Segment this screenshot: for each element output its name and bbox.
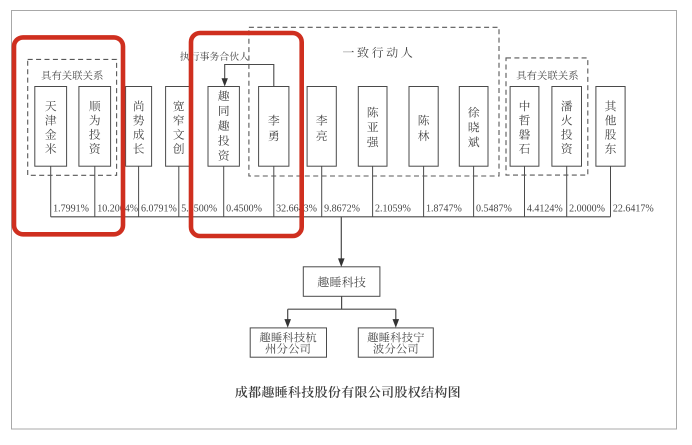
svg-text:22.6417%: 22.6417% bbox=[613, 203, 654, 214]
svg-text:1.7991%: 1.7991% bbox=[53, 203, 89, 214]
svg-text:10.2064%: 10.2064% bbox=[97, 203, 138, 214]
svg-text:1.8747%: 1.8747% bbox=[426, 203, 462, 214]
svg-text:6.0791%: 6.0791% bbox=[141, 203, 177, 214]
svg-text:0.5487%: 0.5487% bbox=[476, 203, 512, 214]
svg-text:4.4124%: 4.4124% bbox=[527, 203, 563, 214]
svg-text:32.6643%: 32.6643% bbox=[276, 203, 317, 214]
svg-text:9.8672%: 9.8672% bbox=[324, 203, 360, 214]
svg-text:2.0000%: 2.0000% bbox=[569, 203, 605, 214]
svg-text:2.1059%: 2.1059% bbox=[375, 203, 411, 214]
svg-text:0.4500%: 0.4500% bbox=[226, 203, 262, 214]
svg-text:5.3500%: 5.3500% bbox=[181, 203, 217, 214]
